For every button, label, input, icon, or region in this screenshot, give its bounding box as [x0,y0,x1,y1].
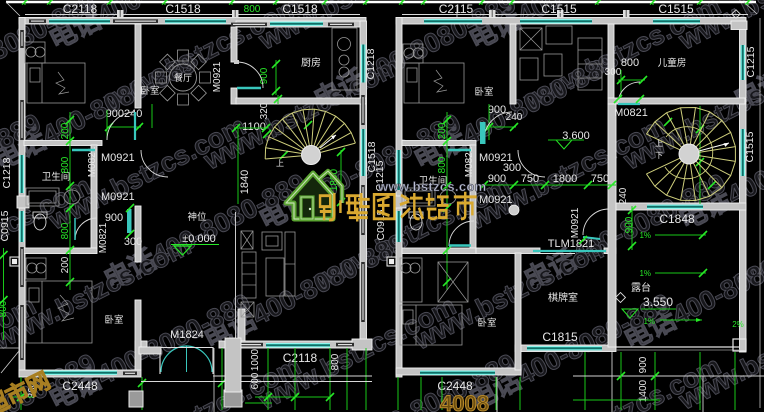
svg-text:750: 750 [591,173,609,185]
svg-text:M0921: M0921 [101,191,135,203]
svg-text:M0921: M0921 [212,61,223,92]
svg-text:C2115: C2115 [439,2,474,16]
svg-text:600: 600 [250,372,261,389]
svg-text:C1518: C1518 [282,2,318,16]
svg-text:200: 200 [60,122,71,139]
svg-text:C1218: C1218 [365,48,377,79]
svg-text:C1515: C1515 [541,2,577,16]
svg-text:900: 900 [105,212,123,224]
svg-text:800: 800 [60,222,71,239]
svg-text:卧室: 卧室 [104,314,123,326]
svg-text:上: 上 [655,139,663,148]
svg-text:卧室: 卧室 [474,86,493,98]
svg-text:800: 800 [330,353,341,370]
svg-text:神位: 神位 [187,211,207,223]
svg-text:1%: 1% [643,317,655,326]
svg-text:C2448: C2448 [62,379,98,393]
svg-text:M0921: M0921 [101,152,135,164]
svg-text:餐厅: 餐厅 [174,72,192,83]
svg-text:900: 900 [624,216,635,233]
svg-text:900: 900 [488,104,506,116]
svg-text:240: 240 [618,187,629,204]
svg-text:200: 200 [437,122,448,139]
svg-text:±0.000: ±0.000 [182,233,216,245]
svg-text:300: 300 [605,67,622,78]
svg-text:M1824: M1824 [170,329,204,341]
svg-text:1000: 1000 [250,348,261,371]
svg-text:C1848: C1848 [659,212,695,226]
svg-text:1840: 1840 [239,170,251,194]
svg-text:卧室: 卧室 [140,85,159,97]
svg-text:320: 320 [259,102,270,119]
svg-text:900: 900 [488,173,506,185]
svg-text:C1515: C1515 [744,131,756,162]
svg-text:M0821: M0821 [614,107,648,119]
svg-text:C1815: C1815 [542,330,578,344]
svg-text:www.bstzcs.com: www.bstzcs.com [377,179,486,194]
svg-text:TLM1821: TLM1821 [548,238,594,250]
svg-text:750: 750 [521,173,539,185]
svg-text:900: 900 [259,67,270,84]
svg-text:C2118: C2118 [283,351,318,365]
svg-text:1400: 1400 [638,379,649,402]
svg-text:M0921: M0921 [479,194,513,206]
svg-text:800: 800 [437,156,448,173]
svg-text:C2118: C2118 [63,2,98,16]
svg-text:下: 下 [655,151,663,160]
svg-text:1800: 1800 [553,173,577,185]
svg-text:1%: 1% [639,231,651,240]
svg-text:M0921: M0921 [570,207,581,238]
svg-text:上: 上 [276,159,284,168]
svg-text:M0821: M0821 [98,222,109,253]
svg-text:卧室: 卧室 [477,317,496,329]
svg-text:800: 800 [244,4,261,15]
svg-text:2%: 2% [732,320,744,329]
svg-text:C1515: C1515 [658,2,694,16]
svg-text:4008: 4008 [440,391,489,412]
svg-text:C1215: C1215 [745,46,757,77]
svg-text:C0915: C0915 [0,210,11,241]
svg-text:3.550: 3.550 [643,295,673,309]
svg-text:儿童房: 儿童房 [658,57,687,69]
svg-text:200: 200 [60,256,71,273]
svg-text:厨房: 厨房 [301,56,321,69]
svg-text:240: 240 [506,112,523,123]
svg-text:C1218: C1218 [1,157,13,188]
svg-text:800: 800 [60,156,71,173]
svg-text:900: 900 [638,356,649,373]
svg-text:露台: 露台 [631,281,651,294]
svg-text:棋牌室: 棋牌室 [548,291,578,304]
svg-text:800: 800 [621,57,639,69]
svg-text:1%: 1% [639,269,651,278]
svg-text:C1518: C1518 [165,2,201,16]
